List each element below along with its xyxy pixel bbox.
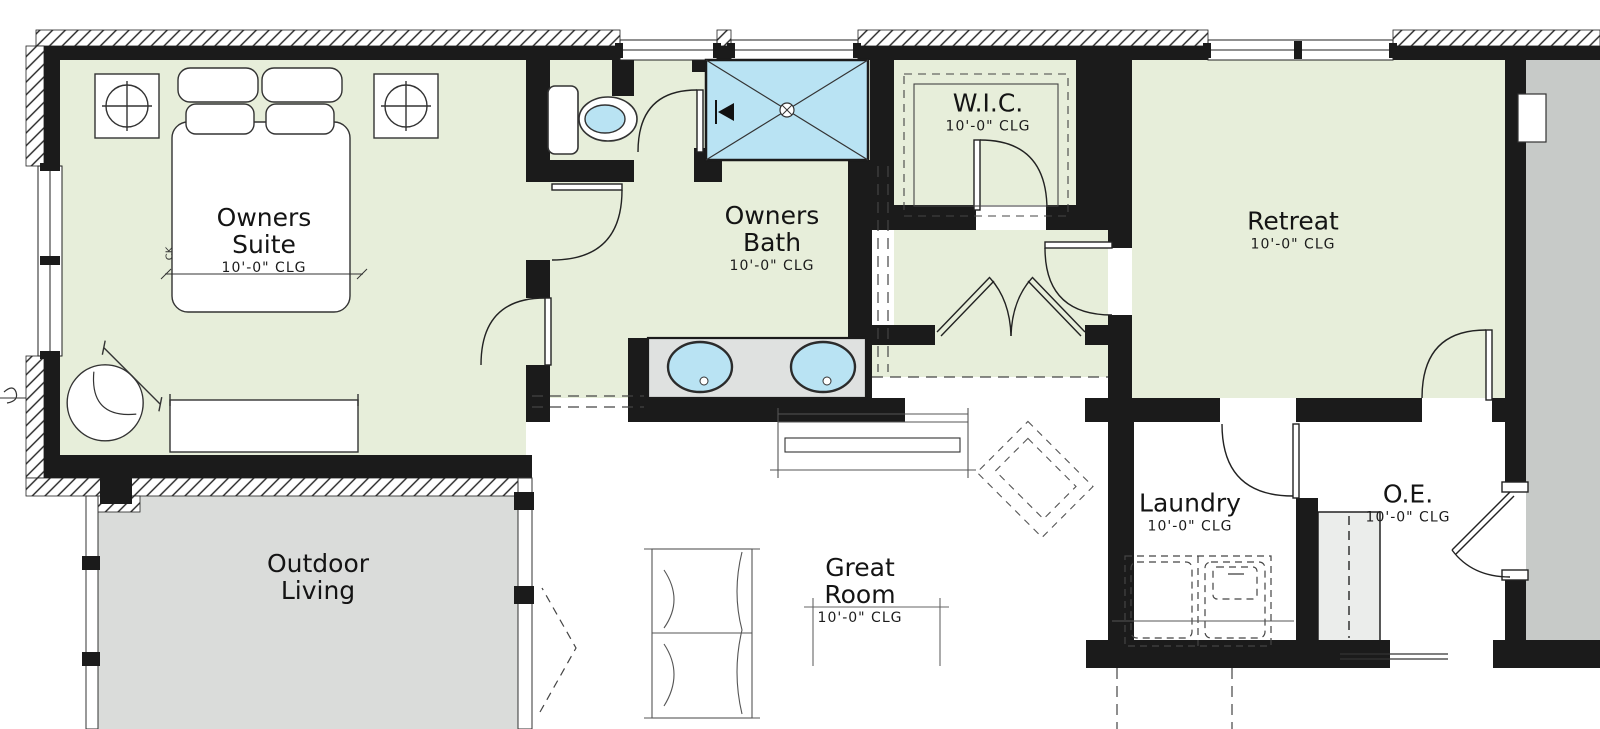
room-name: Laundry (1080, 489, 1300, 516)
ceiling-height: 10'-0" CLG (1193, 237, 1393, 252)
room-name: Outdoor Living (253, 550, 383, 604)
room-label-wic: W.I.C. 10'-0" CLG (888, 89, 1088, 134)
ceiling-height: 10'-0" CLG (713, 259, 831, 274)
room-name: Owners Bath (713, 202, 831, 256)
room-name: W.I.C. (888, 89, 1088, 116)
bed-size-label: CK (164, 247, 175, 261)
room-name: Great Room (805, 554, 915, 608)
room-label-retreat: Retreat 10'-0" CLG (1193, 207, 1393, 252)
sink-right (791, 342, 855, 392)
room-name: O.E. (1308, 480, 1508, 507)
dashed-armchair (977, 421, 1093, 537)
ceiling-height: 10'-0" CLG (205, 261, 323, 276)
room-label-owners-entry: O.E. 10'-0" CLG (1308, 480, 1508, 525)
window-top-2 (727, 40, 861, 60)
folding-door-dashes (540, 588, 576, 712)
outdoor-floor (98, 496, 518, 729)
match-line-symbol (4, 388, 17, 403)
room-label-great-room: Great Room 10'-0" CLG (805, 554, 915, 626)
window-top-3 (1203, 40, 1397, 60)
laundry-appliances (1112, 556, 1294, 646)
room-label-laundry: Laundry 10'-0" CLG (1080, 489, 1300, 534)
ceiling-height: 10'-0" CLG (888, 119, 1088, 134)
floor-plan: Owners Suite 10'-0" CLG Owners Bath 10'-… (0, 0, 1600, 729)
room-label-owners-bath: Owners Bath 10'-0" CLG (713, 202, 831, 274)
sink-left (668, 342, 732, 392)
double-vanity (648, 338, 866, 398)
room-label-owners-suite: Owners Suite 10'-0" CLG (205, 204, 323, 276)
window-top-1 (615, 40, 721, 60)
room-name: Retreat (1193, 207, 1393, 234)
washer (1131, 562, 1192, 638)
adjacent-area (1526, 60, 1600, 640)
ceiling-height: 10'-0" CLG (805, 611, 915, 626)
window-left (38, 163, 62, 359)
room-name: Owners Suite (205, 204, 323, 258)
room-label-outdoor-living: Outdoor Living (253, 550, 383, 604)
bench (170, 394, 358, 452)
loveseat (644, 549, 760, 718)
ceiling-height: 10'-0" CLG (1080, 519, 1300, 534)
wall-niche (1518, 94, 1546, 142)
nightstand-right (374, 74, 438, 138)
walk-in-shower (706, 60, 868, 160)
ceiling-height: 10'-0" CLG (1308, 510, 1508, 525)
floor-plan-drawing (0, 0, 1600, 729)
nightstand-left (95, 74, 159, 138)
